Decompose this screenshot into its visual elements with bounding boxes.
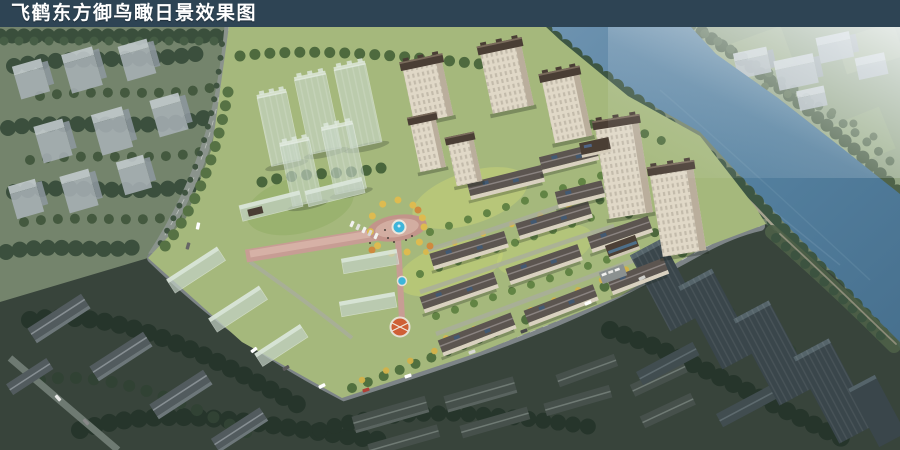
secondary-fountain bbox=[398, 277, 407, 286]
playground bbox=[391, 318, 410, 337]
haze-overlay bbox=[608, 26, 900, 178]
screenshot-root: 飞鹤东方御鸟瞰日景效果图 bbox=[0, 0, 900, 450]
rendering-image bbox=[0, 0, 900, 450]
page-title: 飞鹤东方御鸟瞰日景效果图 bbox=[11, 4, 257, 23]
title-bar: 飞鹤东方御鸟瞰日景效果图 bbox=[0, 0, 900, 27]
